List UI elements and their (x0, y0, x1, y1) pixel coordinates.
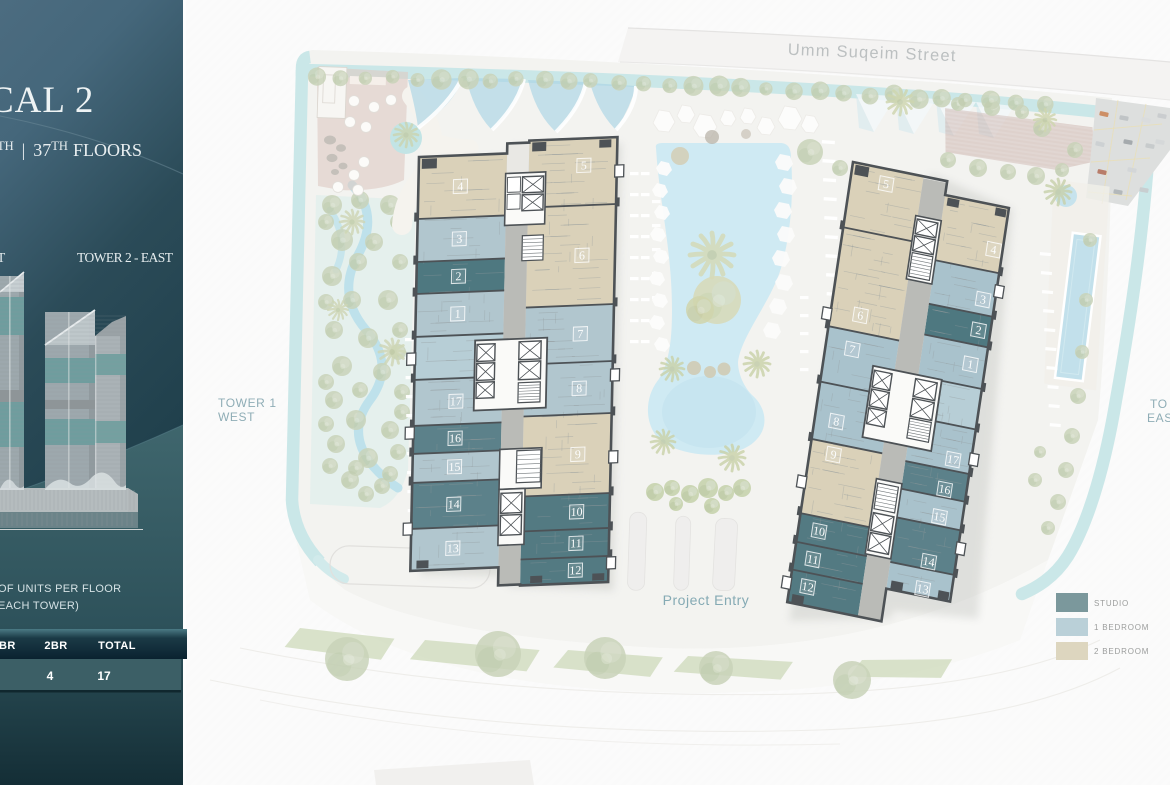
svg-text:2BR: 2BR (44, 640, 67, 652)
svg-text:TOWER 2 - EAST: TOWER 2 - EAST (77, 250, 174, 265)
svg-text:TO: TO (1150, 397, 1168, 411)
svg-text:WEST: WEST (218, 410, 255, 424)
svg-text:CAL 2: CAL 2 (0, 80, 94, 121)
svg-text:EACH TOWER): EACH TOWER) (0, 600, 79, 612)
svg-text:2 BEDROOM: 2 BEDROOM (1094, 647, 1149, 656)
svg-text:Project Entry: Project Entry (663, 592, 750, 608)
svg-text:OF UNITS PER FLOOR: OF UNITS PER FLOOR (0, 583, 121, 595)
svg-text:STUDIO: STUDIO (1094, 599, 1129, 608)
svg-text:4: 4 (47, 669, 54, 683)
svg-text:TOTAL: TOTAL (98, 640, 136, 652)
svg-text:T: T (0, 250, 6, 265)
svg-text:1 BEDROOM: 1 BEDROOM (1094, 623, 1149, 632)
svg-text:17: 17 (97, 669, 111, 683)
svg-text:TOWER 1: TOWER 1 (218, 396, 277, 410)
svg-text:EAS: EAS (1147, 411, 1170, 425)
svg-text:BR: BR (0, 640, 16, 652)
